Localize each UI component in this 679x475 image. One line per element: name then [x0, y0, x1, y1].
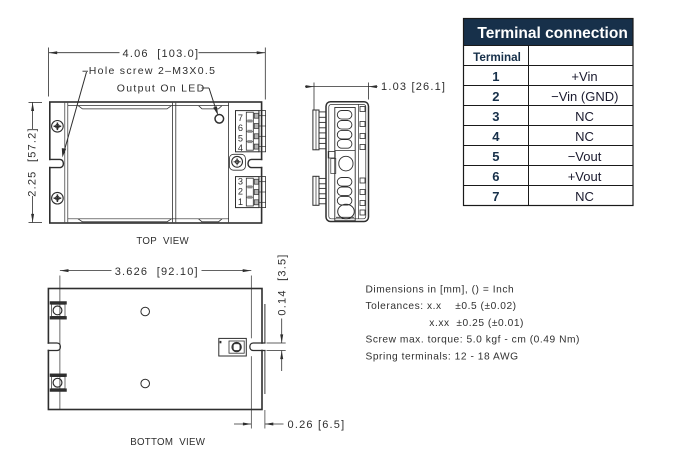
svg-text:Output On LED: Output On LED: [117, 83, 206, 95]
svg-text:2: 2: [238, 187, 243, 197]
svg-text:3: 3: [492, 109, 499, 124]
svg-text:−Vin (GND): −Vin (GND): [551, 89, 618, 104]
svg-text:x.xx ±0.25 (±0.01): x.xx ±0.25 (±0.01): [429, 318, 524, 329]
svg-text:Screw max. torque: 5.0 kgf - c: Screw max. torque: 5.0 kgf - cm (0.49 Nm…: [366, 335, 580, 346]
svg-text:1: 1: [238, 197, 243, 207]
svg-text:3.626 [92.10]: 3.626 [92.10]: [115, 266, 199, 278]
svg-text:Tolerances: x.x ±0.5 (±0.02: Tolerances: x.x ±0.5 (±0.02): [366, 301, 517, 312]
svg-text:Spring terminals: 12 - 18 AWG: Spring terminals: 12 - 18 AWG: [366, 351, 519, 362]
svg-text:4.06 [103.0]: 4.06 [103.0]: [123, 48, 200, 60]
svg-text:6: 6: [238, 123, 243, 133]
svg-text:1: 1: [492, 69, 499, 84]
svg-text:1.03 [26.1]: 1.03 [26.1]: [381, 81, 446, 93]
svg-text:TOP VIEW: TOP VIEW: [136, 236, 189, 247]
svg-text:5: 5: [238, 133, 243, 143]
svg-text:Hole screw 2–M3X0.5: Hole screw 2–M3X0.5: [89, 65, 216, 77]
svg-text:2.25 [57.2]: 2.25 [57.2]: [27, 127, 39, 196]
svg-text:NC: NC: [575, 189, 594, 204]
svg-text:Dimensions in [mm], () = Inch: Dimensions in [mm], () = Inch: [366, 285, 515, 296]
svg-text:2: 2: [492, 89, 499, 104]
svg-text:4: 4: [492, 129, 500, 144]
svg-text:+Vin: +Vin: [571, 69, 597, 84]
svg-text:Terminal connection: Terminal connection: [477, 25, 627, 42]
svg-text:NC: NC: [575, 129, 594, 144]
svg-text:7: 7: [238, 113, 243, 123]
svg-text:5: 5: [492, 149, 499, 164]
svg-text:+Vout: +Vout: [568, 169, 602, 184]
svg-text:NC: NC: [575, 109, 594, 124]
svg-text:−Vout: −Vout: [568, 149, 602, 164]
svg-text:6: 6: [492, 169, 499, 184]
svg-text:3: 3: [238, 176, 243, 186]
svg-text:7: 7: [492, 189, 499, 204]
svg-text:4: 4: [238, 143, 243, 153]
svg-text:0.26 [6.5]: 0.26 [6.5]: [288, 419, 346, 431]
svg-text:Terminal: Terminal: [473, 51, 521, 64]
svg-text:BOTTOM VIEW: BOTTOM VIEW: [130, 437, 206, 448]
svg-text:0.14 [3.5]: 0.14 [3.5]: [276, 253, 288, 315]
